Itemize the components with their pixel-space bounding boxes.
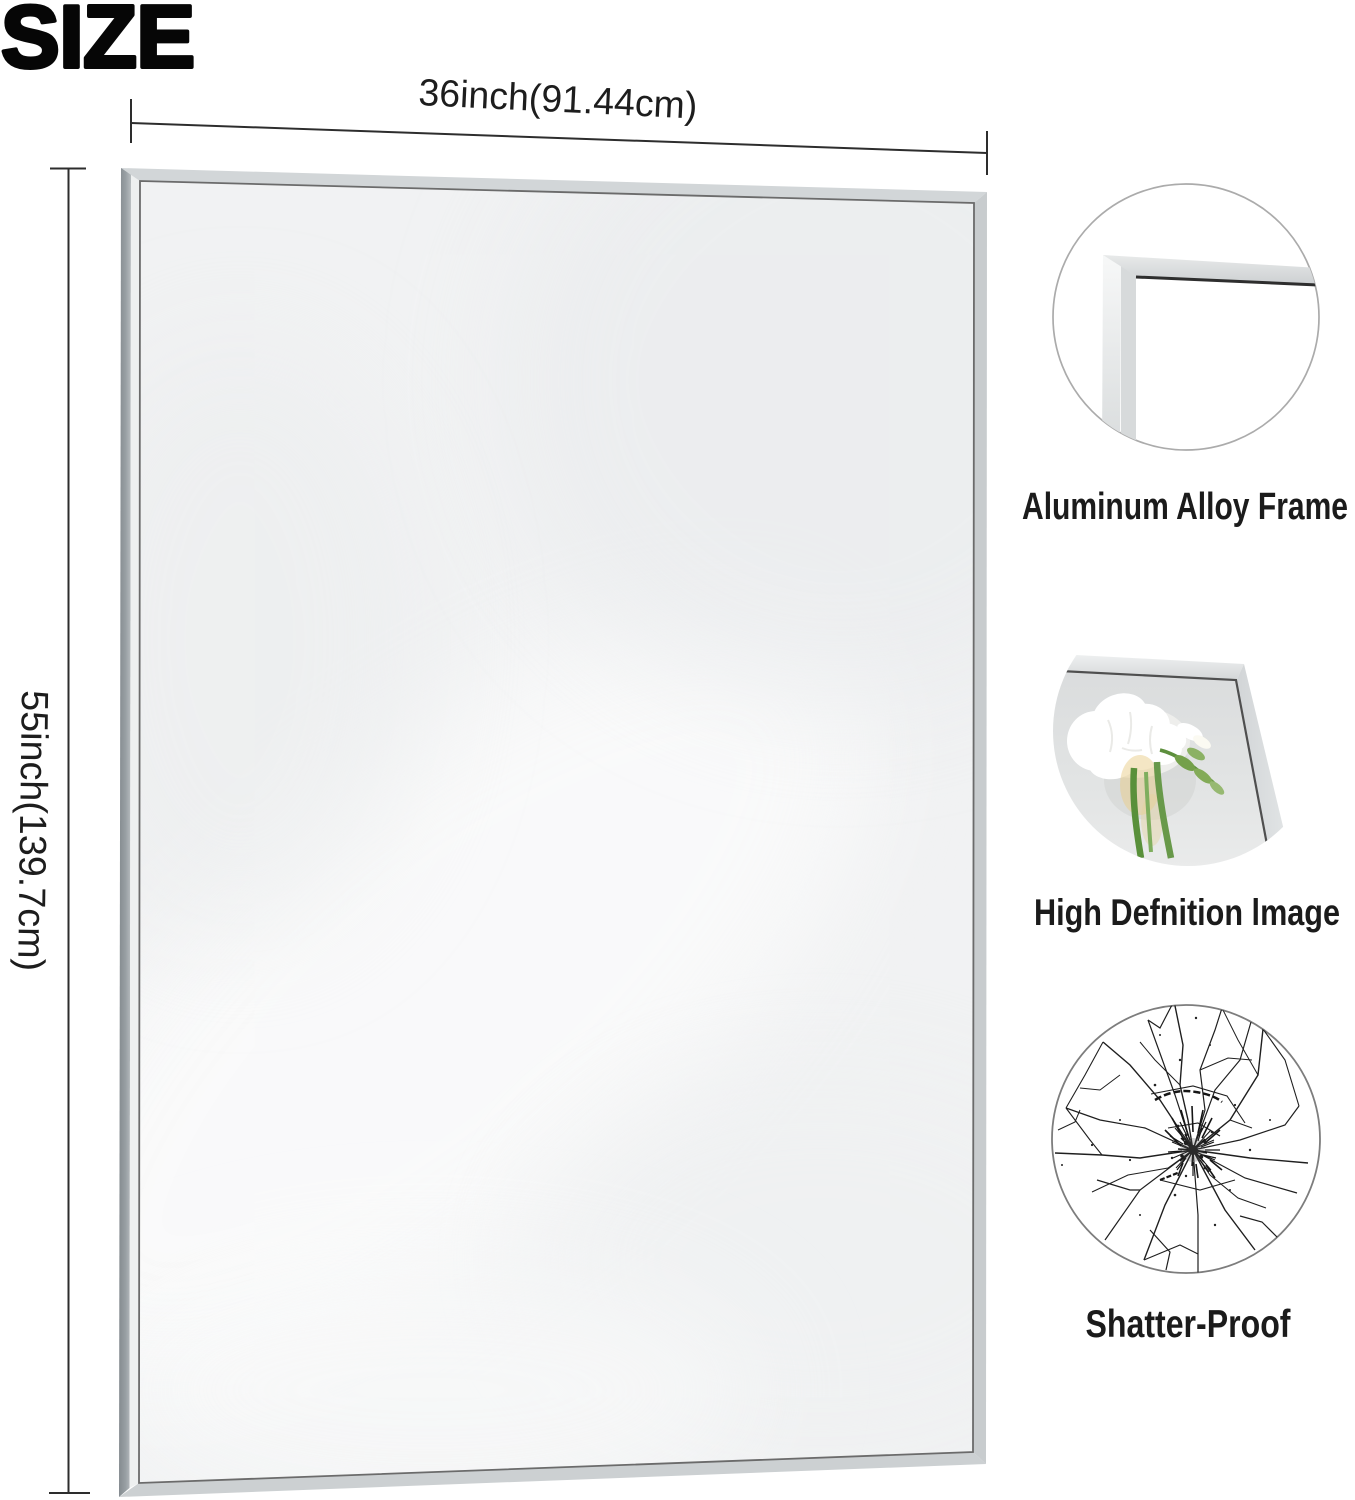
svg-text:SIZE: SIZE bbox=[1, 0, 195, 86]
svg-text:Shatter-Proof: Shatter-Proof bbox=[1086, 1303, 1292, 1346]
svg-text:55inch(139.7cm): 55inch(139.7cm) bbox=[9, 690, 55, 972]
svg-text:High Defnition lmage: High Defnition lmage bbox=[1034, 892, 1340, 933]
svg-text:Aluminum Alloy Frame: Aluminum Alloy Frame bbox=[1022, 486, 1348, 528]
